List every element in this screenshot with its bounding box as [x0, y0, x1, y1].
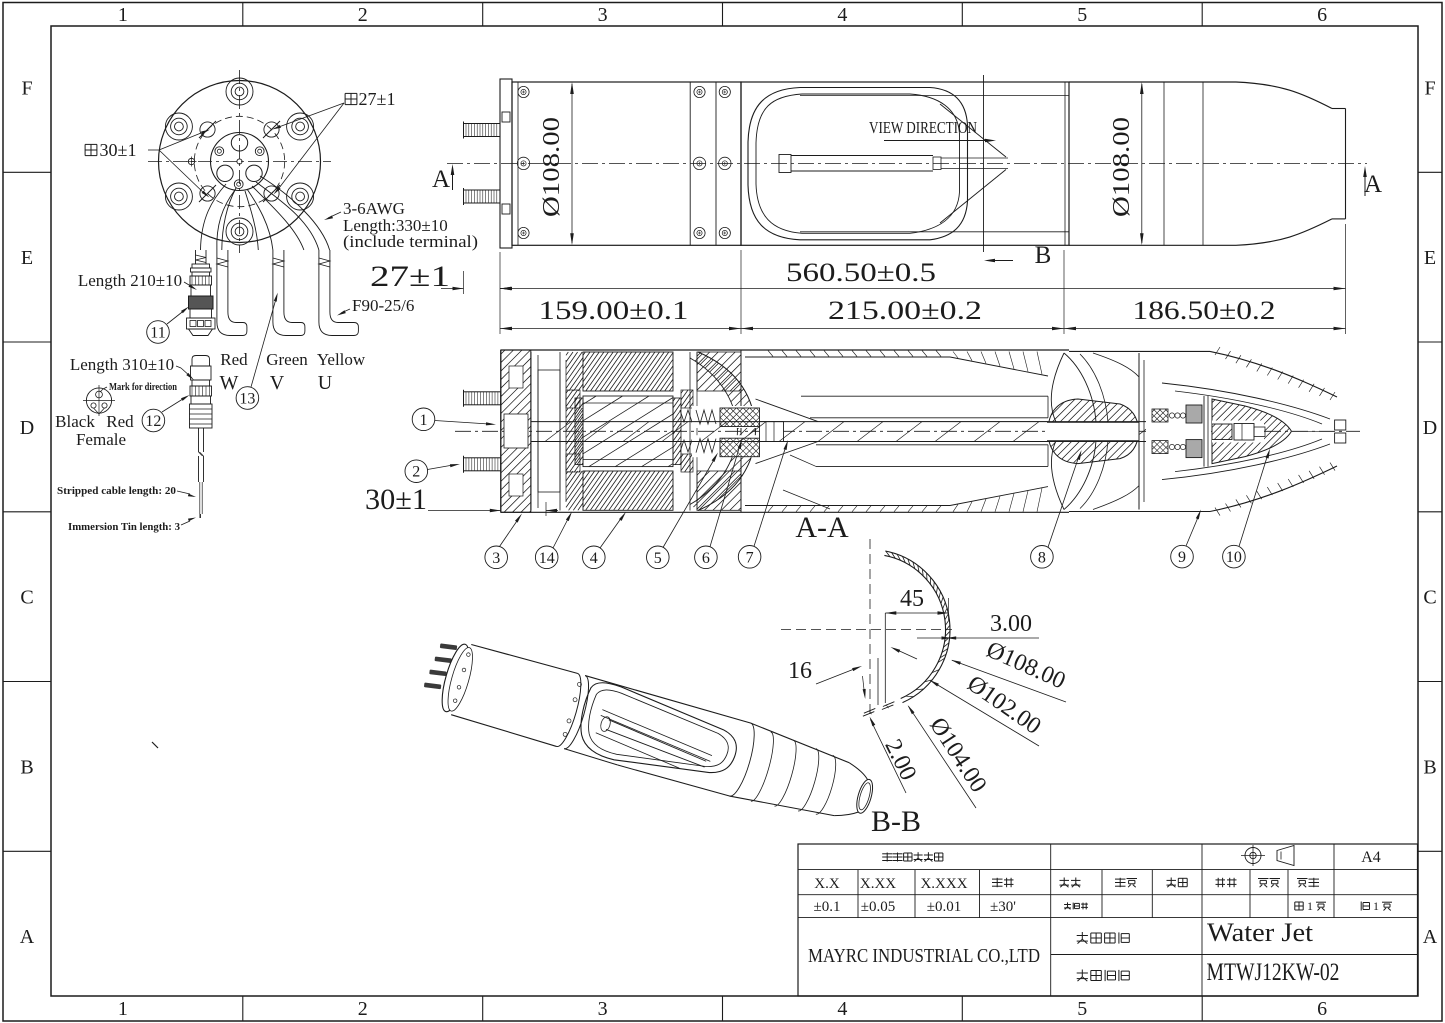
svg-text:4: 4 [590, 550, 598, 567]
svg-text:(include terminal): (include terminal) [343, 232, 478, 251]
svg-text:4: 4 [837, 4, 847, 26]
svg-text:3: 3 [598, 998, 608, 1020]
svg-text:V: V [270, 372, 285, 394]
svg-text:215.00±0.2: 215.00±0.2 [828, 296, 982, 325]
svg-text:A: A [1364, 171, 1382, 198]
svg-text:D: D [1423, 417, 1437, 439]
svg-text:1: 1 [118, 4, 128, 26]
svg-text:45: 45 [900, 586, 924, 612]
svg-text:F90-25/6: F90-25/6 [352, 296, 414, 315]
svg-text:159.00±0.1: 159.00±0.1 [539, 296, 689, 325]
svg-text:6: 6 [702, 550, 710, 567]
svg-text:Yellow: Yellow [317, 350, 366, 369]
svg-text:Water Jet: Water Jet [1207, 918, 1314, 947]
svg-text:Red: Red [106, 412, 134, 431]
svg-text:MTWJ12KW-02: MTWJ12KW-02 [1207, 959, 1340, 986]
svg-text:W: W [220, 372, 239, 394]
svg-text:A-A: A-A [795, 511, 849, 544]
svg-text:2: 2 [358, 4, 368, 26]
svg-text:±30': ±30' [990, 899, 1016, 915]
svg-text:E: E [21, 247, 33, 269]
svg-text:X.XXX: X.XXX [920, 876, 967, 892]
svg-text:Length 210±10: Length 210±10 [78, 271, 182, 290]
svg-text:Length 310±10: Length 310±10 [70, 355, 174, 374]
svg-text:F: F [21, 77, 32, 99]
svg-text:13: 13 [239, 391, 255, 408]
svg-text:Immersion Tin length: 3: Immersion Tin length: 3 [68, 521, 180, 533]
svg-text:A: A [432, 166, 450, 193]
svg-text:Ø108.00: Ø108.00 [1109, 117, 1135, 217]
svg-text:VIEW DIRECTION: VIEW DIRECTION [869, 118, 977, 137]
svg-text:3: 3 [598, 4, 608, 26]
svg-text:12: 12 [145, 413, 161, 430]
svg-text:±0.01: ±0.01 [927, 899, 961, 915]
svg-text:X.X: X.X [814, 876, 840, 892]
svg-text:9: 9 [1178, 549, 1186, 566]
svg-text:±0.1: ±0.1 [814, 899, 841, 915]
svg-text:186.50±0.2: 186.50±0.2 [1133, 296, 1276, 325]
svg-text:1: 1 [118, 998, 128, 1020]
svg-text:1: 1 [420, 412, 428, 429]
svg-text:3.00: 3.00 [990, 611, 1032, 637]
svg-text:F: F [1424, 77, 1435, 99]
svg-text:8: 8 [1038, 549, 1046, 566]
svg-text:E: E [1424, 247, 1436, 269]
svg-text:A: A [20, 926, 35, 948]
svg-text:3: 3 [492, 550, 500, 567]
svg-text:4: 4 [837, 998, 847, 1020]
svg-text:Green: Green [266, 350, 308, 369]
svg-text:B: B [1035, 242, 1052, 269]
svg-text:14: 14 [539, 550, 555, 567]
svg-text:U: U [318, 372, 333, 394]
svg-text:5: 5 [654, 550, 662, 567]
svg-text:6: 6 [1317, 4, 1327, 26]
svg-text:11: 11 [150, 325, 165, 342]
svg-text:30±1: 30±1 [365, 483, 427, 516]
svg-text:D: D [20, 417, 34, 439]
svg-text:2: 2 [358, 998, 368, 1020]
svg-text:1: 1 [1373, 899, 1379, 913]
svg-text:A: A [1423, 926, 1438, 948]
svg-text:560.50±0.5: 560.50±0.5 [786, 258, 936, 287]
svg-text:5: 5 [1077, 4, 1087, 26]
svg-text:2: 2 [412, 464, 420, 481]
svg-text:Female: Female [76, 430, 126, 449]
svg-text:27±1: 27±1 [370, 260, 450, 293]
svg-text:C: C [1423, 587, 1436, 609]
svg-text:B: B [20, 756, 33, 778]
svg-text:Mark for direction: Mark for direction [109, 381, 177, 393]
svg-text:X.XX: X.XX [860, 876, 896, 892]
svg-text:30±1: 30±1 [100, 140, 137, 160]
svg-text:7: 7 [746, 549, 754, 566]
svg-text:16: 16 [788, 658, 812, 684]
svg-text:B: B [1423, 756, 1436, 778]
svg-text:5: 5 [1077, 998, 1087, 1020]
svg-text:1: 1 [1307, 899, 1313, 913]
svg-text:C: C [20, 587, 33, 609]
svg-text:27±1: 27±1 [359, 89, 396, 109]
svg-text:10: 10 [1226, 549, 1242, 566]
svg-text:Stripped cable length: 20: Stripped cable length: 20 [57, 485, 176, 497]
svg-text:MAYRC INDUSTRIAL CO.,LTD: MAYRC INDUSTRIAL CO.,LTD [808, 945, 1040, 967]
svg-text:±0.05: ±0.05 [861, 899, 895, 915]
svg-text:A4: A4 [1361, 849, 1381, 866]
svg-text:6: 6 [1317, 998, 1327, 1020]
svg-text:Black: Black [55, 412, 95, 431]
svg-text:Red: Red [220, 350, 248, 369]
svg-text:B-B: B-B [871, 805, 921, 838]
svg-text:Ø108.00: Ø108.00 [539, 117, 565, 217]
